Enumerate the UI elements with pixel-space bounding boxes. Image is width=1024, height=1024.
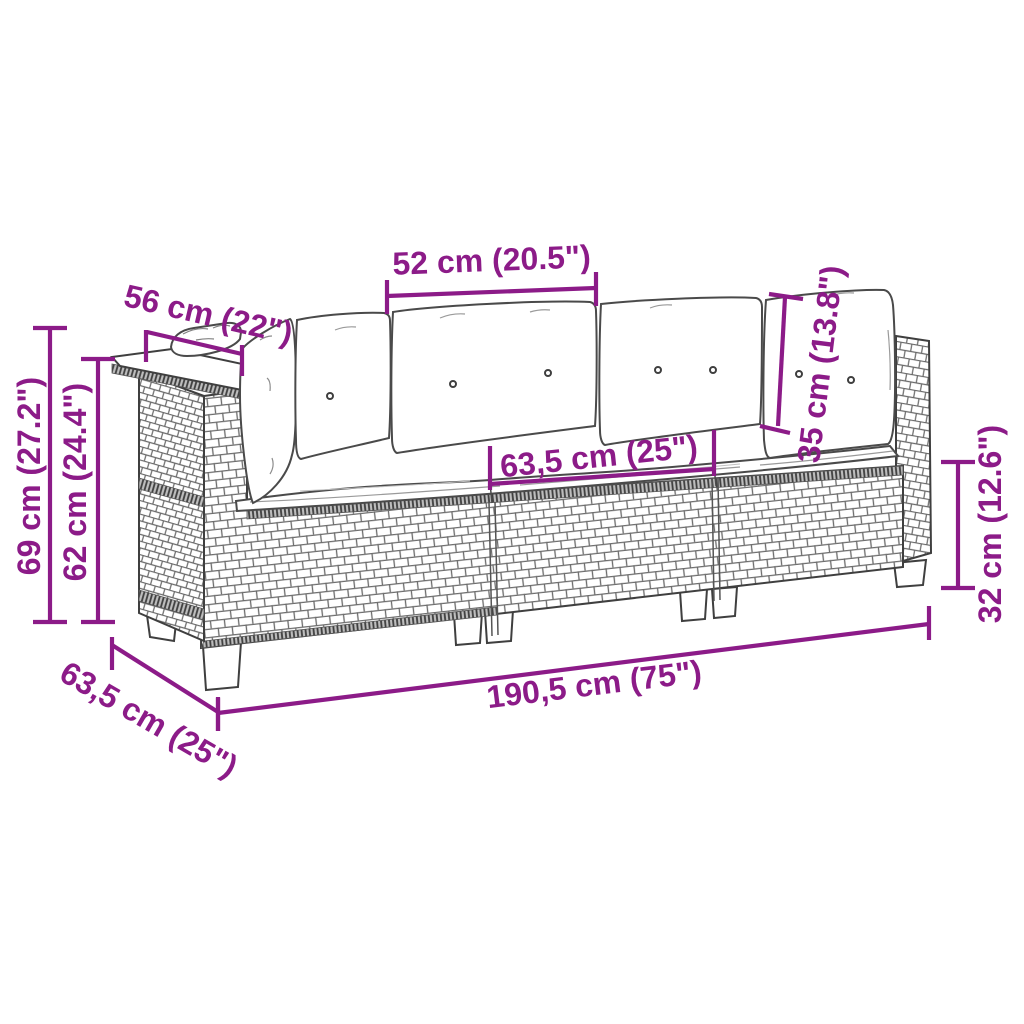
svg-text:32 cm (12.6"): 32 cm (12.6"): [972, 425, 1008, 623]
svg-text:52 cm (20.5"): 52 cm (20.5"): [392, 238, 592, 282]
svg-text:62 cm (24.4"): 62 cm (24.4"): [57, 383, 93, 581]
svg-text:69 cm (27.2"): 69 cm (27.2"): [11, 377, 47, 575]
